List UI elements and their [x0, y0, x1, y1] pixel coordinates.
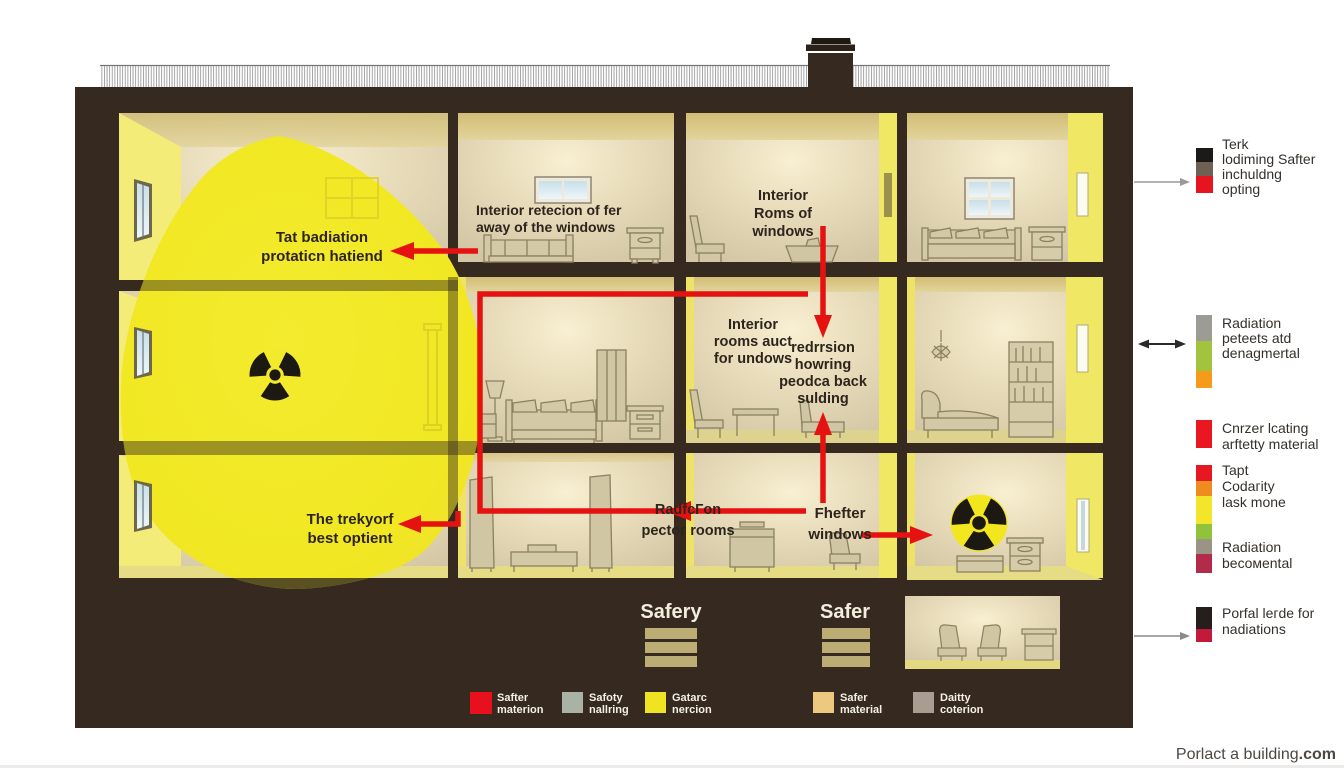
svg-text:for undows: for undows — [714, 351, 792, 367]
svg-text:Tapt: Tapt — [1222, 462, 1249, 478]
svg-text:best optient: best optient — [308, 530, 393, 547]
svg-text:Interior: Interior — [728, 317, 778, 333]
svg-text:lodiming Safter: lodiming Safter — [1222, 151, 1316, 167]
svg-text:sulding: sulding — [797, 391, 849, 407]
svg-text:Safer: Safer — [820, 601, 870, 623]
svg-text:Gatarc: Gatarc — [672, 692, 707, 704]
svg-text:denagmertal: denagmertal — [1222, 345, 1300, 361]
svg-text:Radiation: Radiation — [1222, 315, 1281, 331]
svg-text:Terk: Terk — [1222, 136, 1249, 152]
svg-text:Codaгity: Codaгity — [1222, 478, 1275, 494]
svg-text:Radiation: Radiation — [1222, 539, 1281, 555]
svg-text:windows: windows — [807, 526, 871, 543]
svg-text:The trekyorf: The trekyorf — [307, 511, 395, 528]
svg-text:pectoг rooms: pectoг rooms — [641, 523, 734, 539]
svg-text:Safer: Safer — [840, 692, 868, 704]
svg-text:RadfcГon: RadfcГon — [655, 502, 721, 518]
svg-text:howring: howring — [795, 357, 851, 373]
svg-text:becoмental: becoмental — [1222, 555, 1292, 571]
svg-text:peteets atd: peteets atd — [1222, 330, 1291, 346]
svg-text:material: material — [840, 704, 882, 716]
svg-text:Interior retecion of fer: Interior retecion of fer — [476, 202, 622, 218]
svg-text:Cnrzer lcating: Cnrzer lcating — [1222, 420, 1308, 436]
svg-text:Tat badiation: Tat badiation — [276, 229, 368, 246]
svg-text:lask mone: lask mone — [1222, 494, 1286, 510]
svg-text:Safoty: Safoty — [589, 692, 624, 704]
svg-text:Fhefter: Fhefter — [815, 505, 866, 522]
svg-text:Roms of: Roms of — [754, 206, 812, 222]
svg-text:Safter: Safter — [497, 692, 529, 704]
svg-text:nallring: nallring — [589, 704, 629, 716]
svg-text:Daitty: Daitty — [940, 692, 971, 704]
svg-text:protaticn hatiend: protaticn hatiend — [261, 248, 383, 265]
svg-text:opting: opting — [1222, 181, 1260, 197]
svg-text:Porfal leгde for: Porfal leгde for — [1222, 605, 1315, 621]
svg-text:nercion: nercion — [672, 704, 712, 716]
svg-text:Safery: Safery — [640, 601, 702, 623]
svg-text:inchuldng: inchuldng — [1222, 166, 1282, 182]
svg-text:peodca back: peodca back — [779, 374, 868, 390]
svg-text:rooms auct: rooms auct — [714, 334, 792, 350]
svg-text:coterion: coterion — [940, 704, 984, 716]
svg-text:nadiations: nadiations — [1222, 621, 1286, 637]
svg-text:arftetty material: arftetty material — [1222, 436, 1318, 452]
svg-text:away of the windows: away of the windows — [476, 219, 615, 235]
svg-text:windows: windows — [751, 224, 813, 240]
svg-text:materion: materion — [497, 704, 544, 716]
svg-text:Interior: Interior — [758, 188, 808, 204]
svg-text:Porlact a building.com: Porlact a building.com — [1176, 746, 1336, 763]
svg-text:redrrsion: redrrsion — [791, 340, 855, 356]
